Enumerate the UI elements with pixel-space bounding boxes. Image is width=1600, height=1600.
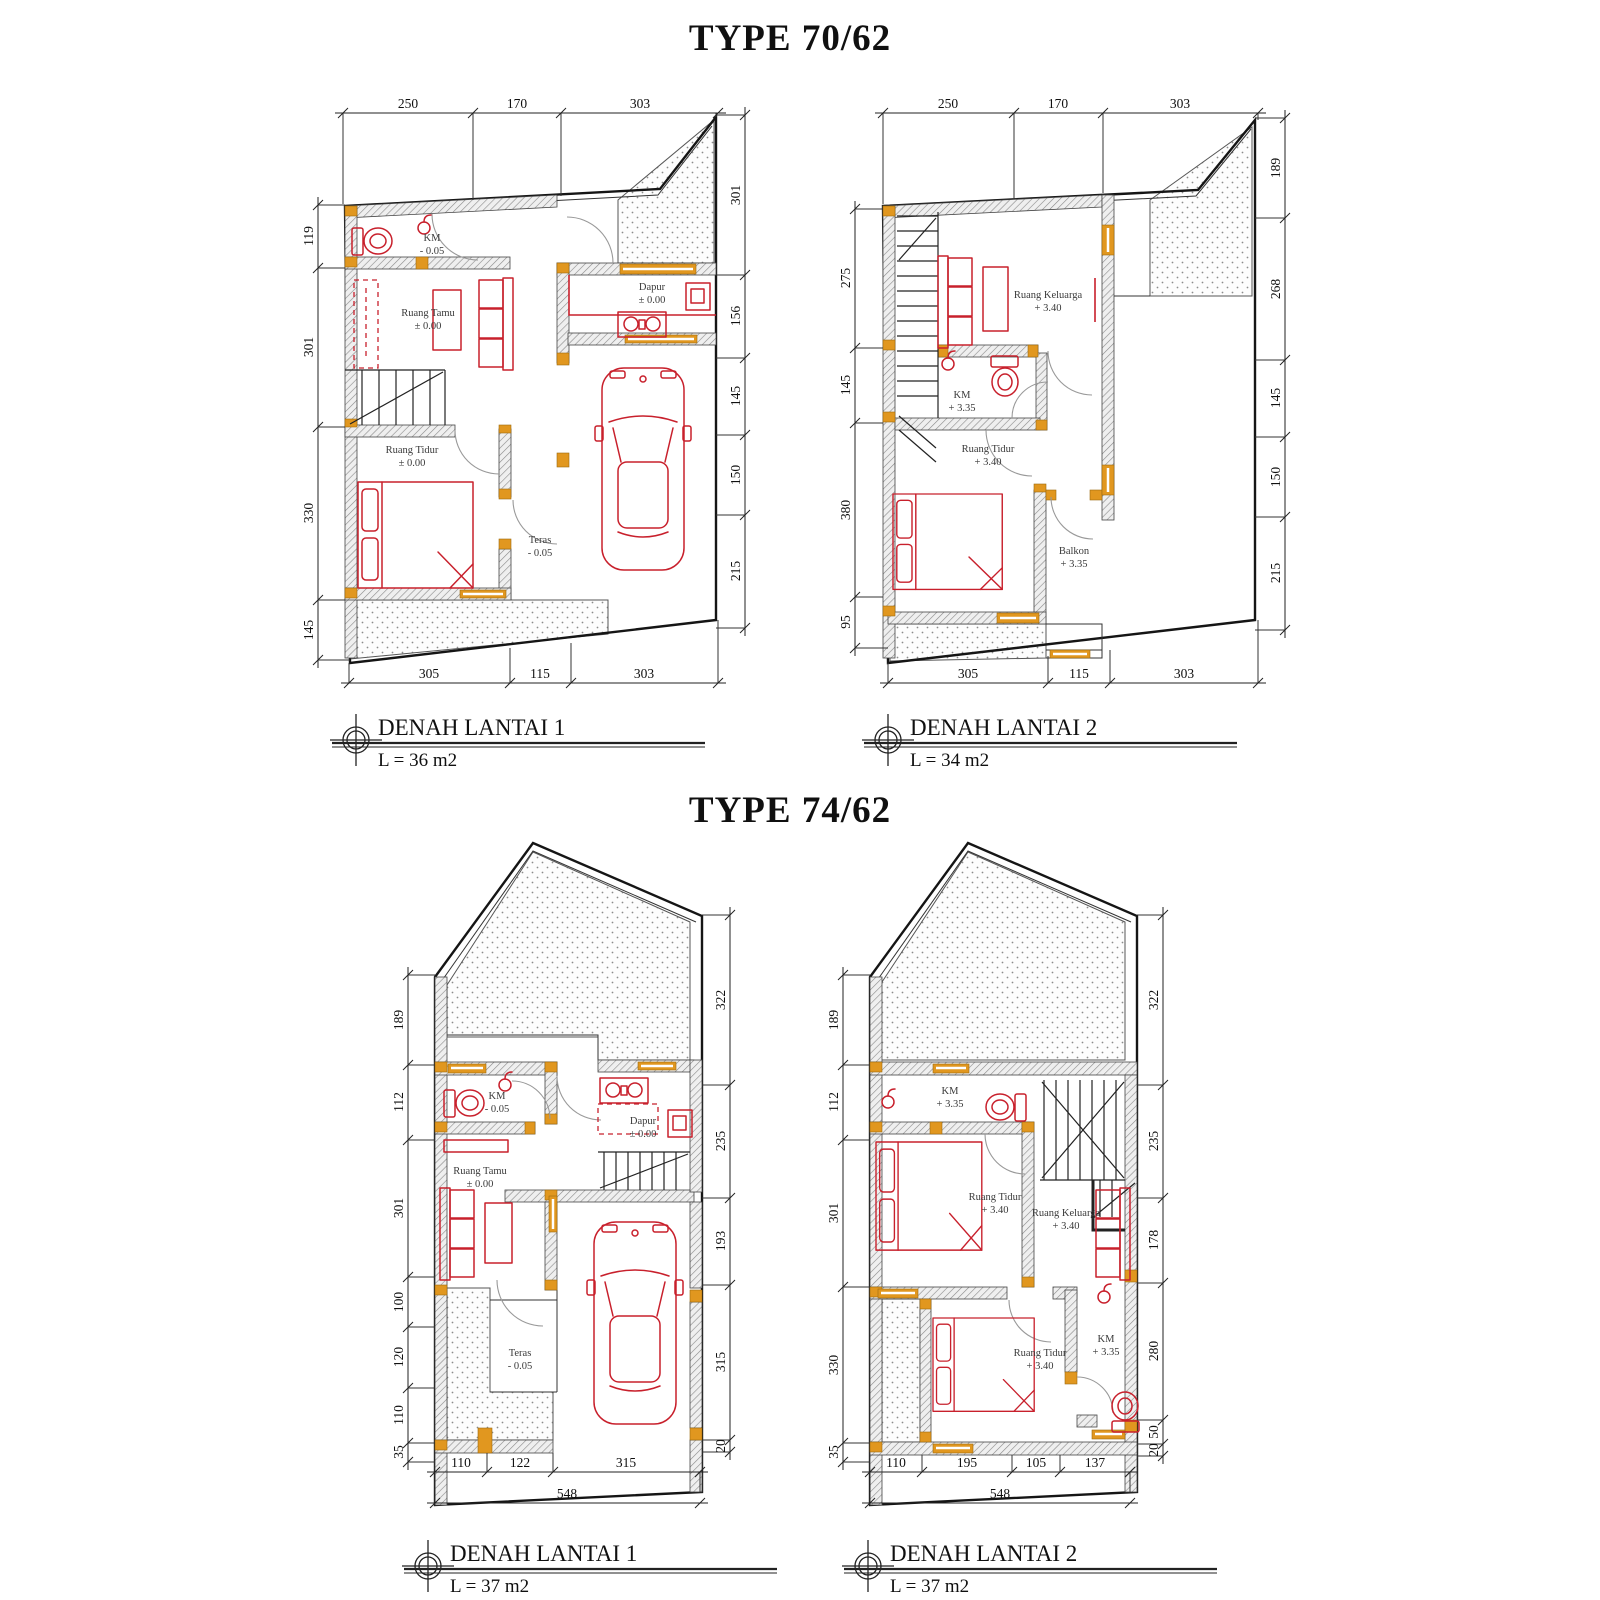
room-elevation: + 3.35 bbox=[1061, 559, 1088, 570]
room-elevation: + 3.35 bbox=[949, 403, 976, 414]
dim-chain-bottom: 305115303 bbox=[880, 666, 1266, 688]
dim-chain-overall: 548 bbox=[862, 1486, 1138, 1508]
dim-label: 119 bbox=[301, 226, 316, 246]
room-elevation: ± 0.00 bbox=[630, 1129, 657, 1140]
dim-label: 105 bbox=[1026, 1455, 1047, 1470]
toilet-icon bbox=[444, 1090, 484, 1117]
dim-chain-right: 189268145150215 bbox=[1268, 110, 1290, 638]
dim-label: 303 bbox=[1170, 96, 1191, 111]
dim-label: 150 bbox=[1268, 467, 1283, 488]
stipple-teras-strip bbox=[350, 600, 608, 659]
door-arc bbox=[1009, 1300, 1051, 1342]
room-label: Ruang Tidur bbox=[1014, 1348, 1067, 1359]
room-label: Ruang Tamu bbox=[401, 308, 455, 319]
dim-label: 305 bbox=[958, 666, 979, 681]
dim-label: 178 bbox=[1146, 1230, 1161, 1251]
dim-label: 215 bbox=[1268, 563, 1283, 584]
dim-label: 322 bbox=[713, 990, 728, 1010]
dim-label: 275 bbox=[838, 268, 853, 289]
dim-label: 115 bbox=[530, 666, 550, 681]
door-arc bbox=[1048, 351, 1092, 395]
stipple-side bbox=[447, 1288, 553, 1440]
dim-label: 145 bbox=[1268, 388, 1283, 409]
section-marker-icon bbox=[402, 1540, 454, 1592]
dim-label: 330 bbox=[826, 1355, 841, 1376]
door-arc bbox=[557, 1076, 601, 1120]
plan-title: DENAH LANTAI 1 bbox=[450, 1541, 637, 1566]
stipple-strip bbox=[890, 624, 1046, 661]
dim-label: 145 bbox=[838, 375, 853, 396]
section-marker-icon bbox=[330, 714, 382, 766]
dim-chain-top: 250170303 bbox=[875, 96, 1266, 118]
plan-area: L = 37 m2 bbox=[890, 1576, 969, 1597]
car-icon bbox=[587, 1222, 683, 1424]
dim-label: 548 bbox=[557, 1486, 578, 1501]
room-label: Ruang Tamu bbox=[453, 1166, 507, 1177]
plan-title: DENAH LANTAI 1 bbox=[378, 715, 565, 740]
stipple-yard bbox=[1150, 127, 1252, 296]
dim-label: 305 bbox=[419, 666, 440, 681]
plan-type70-lantai2: Ruang Keluarga + 3.40 KM + 3.35 Ruang Ti… bbox=[838, 96, 1290, 771]
room-label: KM bbox=[942, 1086, 960, 1097]
dim-label: 301 bbox=[728, 185, 743, 205]
room-elevation: + 3.40 bbox=[1053, 1221, 1080, 1232]
room-label: Ruang Tidur bbox=[969, 1192, 1022, 1203]
room-label: Ruang Tidur bbox=[386, 445, 439, 456]
room-label: KM bbox=[954, 390, 972, 401]
table bbox=[485, 1203, 512, 1263]
room-elevation: ± 0.00 bbox=[467, 1179, 494, 1190]
dim-label: 195 bbox=[957, 1455, 978, 1470]
dim-chain-left: 18911230133035 bbox=[826, 967, 848, 1470]
table bbox=[983, 267, 1008, 331]
door-arc bbox=[1077, 1377, 1113, 1413]
dim-label: 110 bbox=[451, 1455, 471, 1470]
dim-label: 189 bbox=[391, 1010, 406, 1031]
door-arc bbox=[567, 217, 613, 263]
dim-chain-top: 250170303 bbox=[335, 96, 726, 118]
dim-label: 315 bbox=[713, 1352, 728, 1373]
dim-label: 189 bbox=[1268, 158, 1283, 179]
room-elevation: - 0.05 bbox=[528, 548, 553, 559]
toilet-icon bbox=[352, 228, 392, 255]
dim-label: 110 bbox=[391, 1405, 406, 1425]
room-elevation: + 3.40 bbox=[1027, 1361, 1054, 1372]
dim-label: 20 bbox=[713, 1439, 728, 1453]
dim-chain-bottom: 305115303 bbox=[341, 666, 726, 688]
dim-label: 95 bbox=[838, 615, 853, 629]
room-elevation: + 3.40 bbox=[982, 1205, 1009, 1216]
dim-label: 35 bbox=[391, 1445, 406, 1459]
dim-label: 170 bbox=[507, 96, 528, 111]
shower-icon bbox=[882, 1089, 895, 1108]
bed-icon bbox=[933, 1318, 1034, 1411]
tv-shelf bbox=[444, 1140, 508, 1152]
plan-type74-lantai1: KM - 0.05 Dapur ± 0.00 Ruang Tamu ± 0.00… bbox=[391, 843, 777, 1597]
dim-label: 150 bbox=[728, 465, 743, 486]
dim-label: 250 bbox=[938, 96, 959, 111]
car-icon bbox=[595, 368, 691, 570]
dim-label: 189 bbox=[826, 1010, 841, 1031]
dim-label: 315 bbox=[616, 1455, 637, 1470]
dim-label: 235 bbox=[1146, 1131, 1161, 1152]
dim-label: 50 bbox=[1146, 1425, 1161, 1439]
room-elevation: - 0.05 bbox=[485, 1104, 510, 1115]
sofa-icon bbox=[938, 256, 972, 348]
room-label: Ruang Tidur bbox=[962, 444, 1015, 455]
bed-icon bbox=[893, 494, 1002, 589]
shower-icon bbox=[1098, 1284, 1111, 1303]
dim-chain-bottom: 110195105137 bbox=[862, 1455, 1138, 1477]
room-elevation: + 3.35 bbox=[1093, 1347, 1120, 1358]
bed-icon bbox=[358, 482, 473, 588]
dim-label: 145 bbox=[728, 386, 743, 407]
dim-label: 35 bbox=[826, 1445, 841, 1459]
floorplan-drawing: TYPE 70/62 TYPE 74/62 bbox=[0, 0, 1600, 1600]
dim-label: 301 bbox=[301, 337, 316, 357]
dim-label: 122 bbox=[510, 1455, 530, 1470]
dim-label: 303 bbox=[634, 666, 655, 681]
dim-chain-left: 27514538095 bbox=[838, 201, 860, 656]
dim-label: 303 bbox=[630, 96, 651, 111]
dim-label: 112 bbox=[826, 1092, 841, 1112]
room-label: KM bbox=[424, 233, 442, 244]
room-label: Dapur bbox=[630, 1116, 657, 1127]
dim-chain-right: 3222351782805020 bbox=[1146, 907, 1168, 1464]
plan-type74-lantai2: KM + 3.35 Ruang Tidur + 3.40 Ruang Kelua… bbox=[826, 843, 1217, 1597]
stairs bbox=[598, 1152, 690, 1190]
dim-chain-right: 301156145150215 bbox=[728, 107, 750, 636]
shower-icon bbox=[418, 215, 431, 234]
room-label: Balkon bbox=[1059, 546, 1090, 557]
plan-area: L = 37 m2 bbox=[450, 1576, 529, 1597]
dim-label: 100 bbox=[391, 1292, 406, 1313]
dim-label: 268 bbox=[1268, 279, 1283, 300]
sofa-icon bbox=[479, 278, 513, 370]
room-label: Teras bbox=[509, 1348, 532, 1359]
dim-label: 156 bbox=[728, 306, 743, 327]
room-label: KM bbox=[489, 1091, 507, 1102]
door-arc bbox=[512, 1081, 550, 1119]
section-title: TYPE 74/62 bbox=[689, 790, 891, 831]
dim-label: 112 bbox=[391, 1092, 406, 1112]
room-elevation: - 0.05 bbox=[420, 246, 445, 257]
plan-caption: DENAH LANTAI 2 L = 37 m2 bbox=[842, 1540, 1217, 1597]
plan-area: L = 36 m2 bbox=[378, 750, 457, 771]
stipple-yard bbox=[880, 852, 1125, 1060]
dim-label: 330 bbox=[301, 503, 316, 524]
plan-type70-lantai1: KM - 0.05 Ruang Tamu ± 0.00 Dapur ± 0.00… bbox=[301, 96, 750, 771]
dim-chain-bottom: 110122315 bbox=[427, 1455, 708, 1477]
dim-label: 235 bbox=[713, 1131, 728, 1152]
section-title: TYPE 70/62 bbox=[689, 18, 891, 59]
plan-area: L = 34 m2 bbox=[910, 750, 989, 771]
section-marker-icon bbox=[842, 1540, 894, 1592]
coffee-table bbox=[433, 290, 461, 350]
plan-caption: DENAH LANTAI 1 L = 36 m2 bbox=[330, 714, 705, 771]
room-label: KM bbox=[1098, 1334, 1116, 1345]
toilet-icon bbox=[991, 356, 1018, 396]
plan-title: DENAH LANTAI 2 bbox=[910, 715, 1097, 740]
dim-label: 301 bbox=[391, 1198, 406, 1218]
dim-label: 250 bbox=[398, 96, 419, 111]
stipple-side bbox=[882, 1299, 920, 1442]
dim-chain-left: 18911230110012011035 bbox=[391, 967, 413, 1470]
room-elevation: ± 0.00 bbox=[639, 295, 666, 306]
dim-label: 137 bbox=[1085, 1455, 1106, 1470]
dim-label: 170 bbox=[1048, 96, 1069, 111]
plan-caption: DENAH LANTAI 2 L = 34 m2 bbox=[862, 714, 1237, 771]
door-arc bbox=[455, 430, 499, 474]
dim-label: 280 bbox=[1146, 1341, 1161, 1362]
dim-label: 548 bbox=[990, 1486, 1011, 1501]
toilet-icon bbox=[986, 1094, 1026, 1121]
room-label: Dapur bbox=[639, 282, 666, 293]
dim-label: 303 bbox=[1174, 666, 1195, 681]
dim-label: 215 bbox=[728, 561, 743, 582]
dim-label: 322 bbox=[1146, 990, 1161, 1010]
fridge-icon bbox=[668, 1110, 692, 1137]
room-elevation: + 3.35 bbox=[937, 1099, 964, 1110]
room-label: Ruang Keluarga bbox=[1014, 290, 1083, 301]
room-elevation: - 0.05 bbox=[508, 1361, 533, 1372]
room-elevation: + 3.40 bbox=[1035, 303, 1062, 314]
dim-chain-overall: 548 bbox=[427, 1486, 708, 1508]
section-marker-icon bbox=[862, 714, 914, 766]
dim-label: 301 bbox=[826, 1203, 841, 1223]
dim-label: 120 bbox=[391, 1347, 406, 1368]
room-label: Ruang Keluarga bbox=[1032, 1208, 1101, 1219]
fridge-icon bbox=[686, 283, 710, 310]
dim-chain-right: 32223519331520 bbox=[713, 907, 735, 1460]
room-elevation: ± 0.00 bbox=[399, 458, 426, 469]
dim-label: 115 bbox=[1069, 666, 1089, 681]
plan-title: DENAH LANTAI 2 bbox=[890, 1541, 1077, 1566]
floorplan-sheet: TYPE 70/62 TYPE 74/62 bbox=[0, 0, 1600, 1600]
room-elevation: + 3.40 bbox=[975, 457, 1002, 468]
plan-caption: DENAH LANTAI 1 L = 37 m2 bbox=[402, 1540, 777, 1597]
door-arc bbox=[985, 1134, 1025, 1174]
stairs bbox=[345, 370, 445, 425]
stove-icon bbox=[600, 1078, 648, 1103]
door-arc bbox=[1051, 497, 1093, 539]
dim-label: 145 bbox=[301, 620, 316, 641]
door-arc bbox=[497, 1280, 543, 1326]
dim-label: 193 bbox=[713, 1231, 728, 1252]
room-elevation: ± 0.00 bbox=[415, 321, 442, 332]
stipple-yard bbox=[447, 852, 690, 1060]
room-label: Teras bbox=[529, 535, 552, 546]
dim-label: 20 bbox=[1146, 1443, 1161, 1457]
bed-icon bbox=[876, 1142, 982, 1250]
dim-label: 380 bbox=[838, 500, 853, 521]
dim-label: 110 bbox=[886, 1455, 906, 1470]
